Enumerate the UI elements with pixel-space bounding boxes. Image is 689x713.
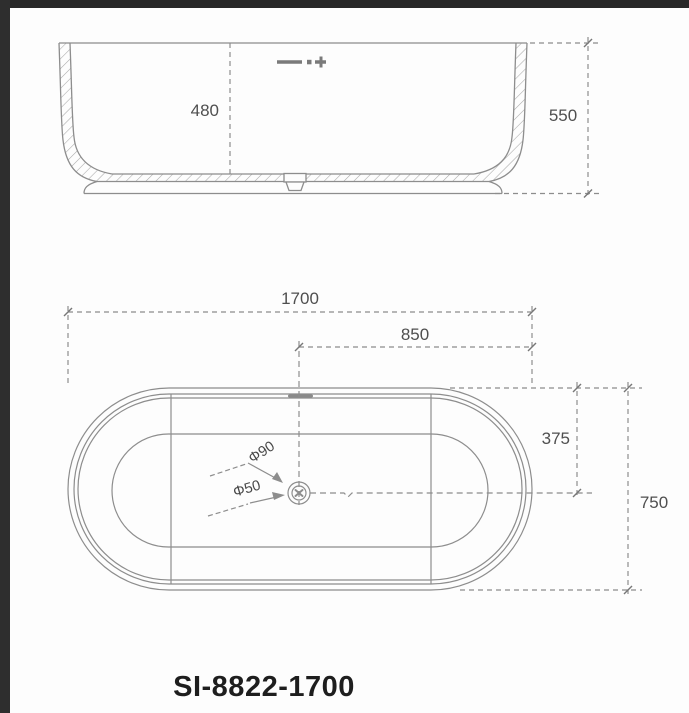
section-view xyxy=(59,43,527,194)
plan-dimensions xyxy=(64,306,642,596)
drawing-sheet: 480 550 xyxy=(0,0,689,713)
section-drain-body xyxy=(286,182,304,191)
dim-center-to-end-label: 850 xyxy=(401,325,429,344)
dim-center-to-side-label: 375 xyxy=(542,429,570,448)
section-base-left-edge xyxy=(84,182,97,194)
bathtub-technical-drawing: 480 550 xyxy=(0,0,689,713)
drain-inner-diameter-label: Φ50 xyxy=(231,478,262,501)
phi90-leader-ext xyxy=(210,464,246,476)
model-number-label: SI-8822-1700 xyxy=(173,671,355,703)
phi50-arrowhead-icon xyxy=(272,492,285,500)
phi50-leader-ext xyxy=(208,504,248,516)
section-base-right-edge xyxy=(489,182,502,194)
plan-view xyxy=(68,388,532,590)
dim-overall-width-label: 750 xyxy=(640,493,668,512)
drain-horizontal-centerline xyxy=(310,493,592,497)
dimension-ticks xyxy=(64,308,632,594)
section-wall-hatch xyxy=(59,43,527,182)
phi90-arrowhead-icon xyxy=(272,472,283,483)
section-drain-recess xyxy=(284,174,306,183)
dim-inner-depth-label: 480 xyxy=(191,101,219,120)
dim-overall-height-label: 550 xyxy=(549,106,577,125)
water-level-mark-icon xyxy=(277,57,326,68)
drain-outer-diameter-label: Φ90 xyxy=(246,438,278,467)
dim-overall-length-label: 1700 xyxy=(281,289,319,308)
overflow-slot-mark xyxy=(288,395,313,398)
